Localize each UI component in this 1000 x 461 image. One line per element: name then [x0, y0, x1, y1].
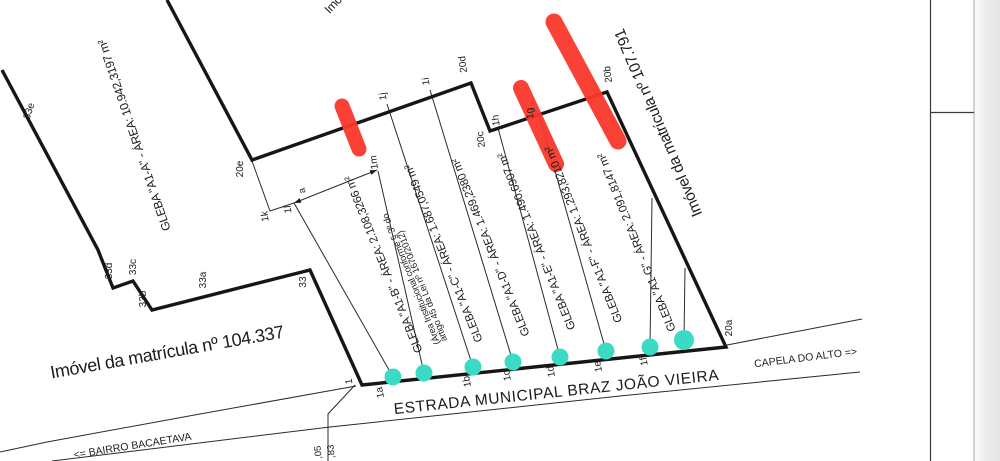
dimension-label-a: a	[296, 186, 308, 195]
division-line-1l-1a	[294, 203, 393, 377]
vertex-label-33e: 33e	[22, 101, 38, 121]
matricula-107791-label: Imóvel da matrícula nº 107.791	[612, 26, 707, 219]
gleba-a1a-label: GLEBA "A1-A" - ÁREA: 10.942,3197 m²	[94, 38, 174, 234]
vertex-label-1m: 1m	[368, 155, 381, 170]
dimension-arrowhead-1l	[294, 198, 301, 203]
vertex-label-20d: 20d	[457, 55, 470, 73]
vertex-label-1g: 1g	[524, 107, 536, 119]
vertex-label-1d: 1d	[545, 365, 558, 378]
vertex-label-20b: 20b	[602, 65, 615, 83]
vertex-label-1l: 1l	[283, 205, 295, 214]
vertex-label-20c: 20c	[475, 131, 488, 148]
vertex-label-1k: 1k	[259, 209, 271, 222]
page-edge-shadow	[974, 0, 1000, 461]
lot-frontage-dot-1e	[598, 343, 615, 360]
vertex-label-33d: 33d	[104, 263, 115, 280]
top-neighbor-parcel-fragment: Imóvel	[322, 0, 355, 16]
dimension-label-83: ,83	[325, 444, 337, 458]
lot-frontage-dot-1a	[385, 369, 402, 386]
survey-map: Imóvel da matrícula nº 104.337 Imóvel da…	[0, 0, 1000, 461]
vertex-label-1j: 1j	[378, 92, 390, 101]
matricula-104337-label: Imóvel da matrícula nº 104.337	[49, 322, 286, 383]
road-edge-lower	[52, 372, 860, 461]
red-marker-stroke-1	[342, 106, 359, 149]
vertex-label-1c: 1c	[501, 369, 514, 381]
lot-frontage-dot-1d	[552, 349, 569, 366]
boundary-20e-1k-1l	[252, 161, 294, 211]
vertex-label-33b: 33b	[138, 290, 149, 307]
direction-capela-do-alto-label: CAPELA DO ALTO =>	[754, 346, 858, 371]
dimension-label-05: ,05	[312, 445, 324, 459]
lot-frontage-dot-20a	[674, 330, 694, 350]
lot-frontage-dot-1f	[642, 339, 659, 356]
survey-plat-screenshot: Imóvel da matrícula nº 104.337 Imóvel da…	[0, 0, 1000, 461]
vertex-label-1a: 1a	[374, 386, 387, 399]
lot-frontage-dot-2	[416, 365, 433, 382]
road-edge-upper-right	[727, 319, 862, 345]
vertex-label-33: 33	[298, 276, 309, 288]
division-line-20a-side	[684, 268, 685, 340]
vertex-label-1f: 1f	[638, 356, 650, 366]
lot-frontage-dot-1c	[505, 354, 522, 371]
vertex-label-1h: 1h	[490, 114, 502, 126]
vertex-label-1b: 1b	[461, 375, 474, 388]
vertex-label-33c: 33c	[128, 259, 139, 275]
vertex-label-33a: 33a	[198, 271, 209, 288]
vertex-label-1: 1	[344, 377, 356, 384]
vertex-label-20a: 20a	[724, 319, 735, 336]
vertex-label-20e: 20e	[235, 160, 246, 177]
vertex-label-1i: 1i	[421, 77, 433, 86]
lot-frontage-dot-1b	[465, 359, 482, 376]
dimension-line-a	[294, 170, 377, 203]
